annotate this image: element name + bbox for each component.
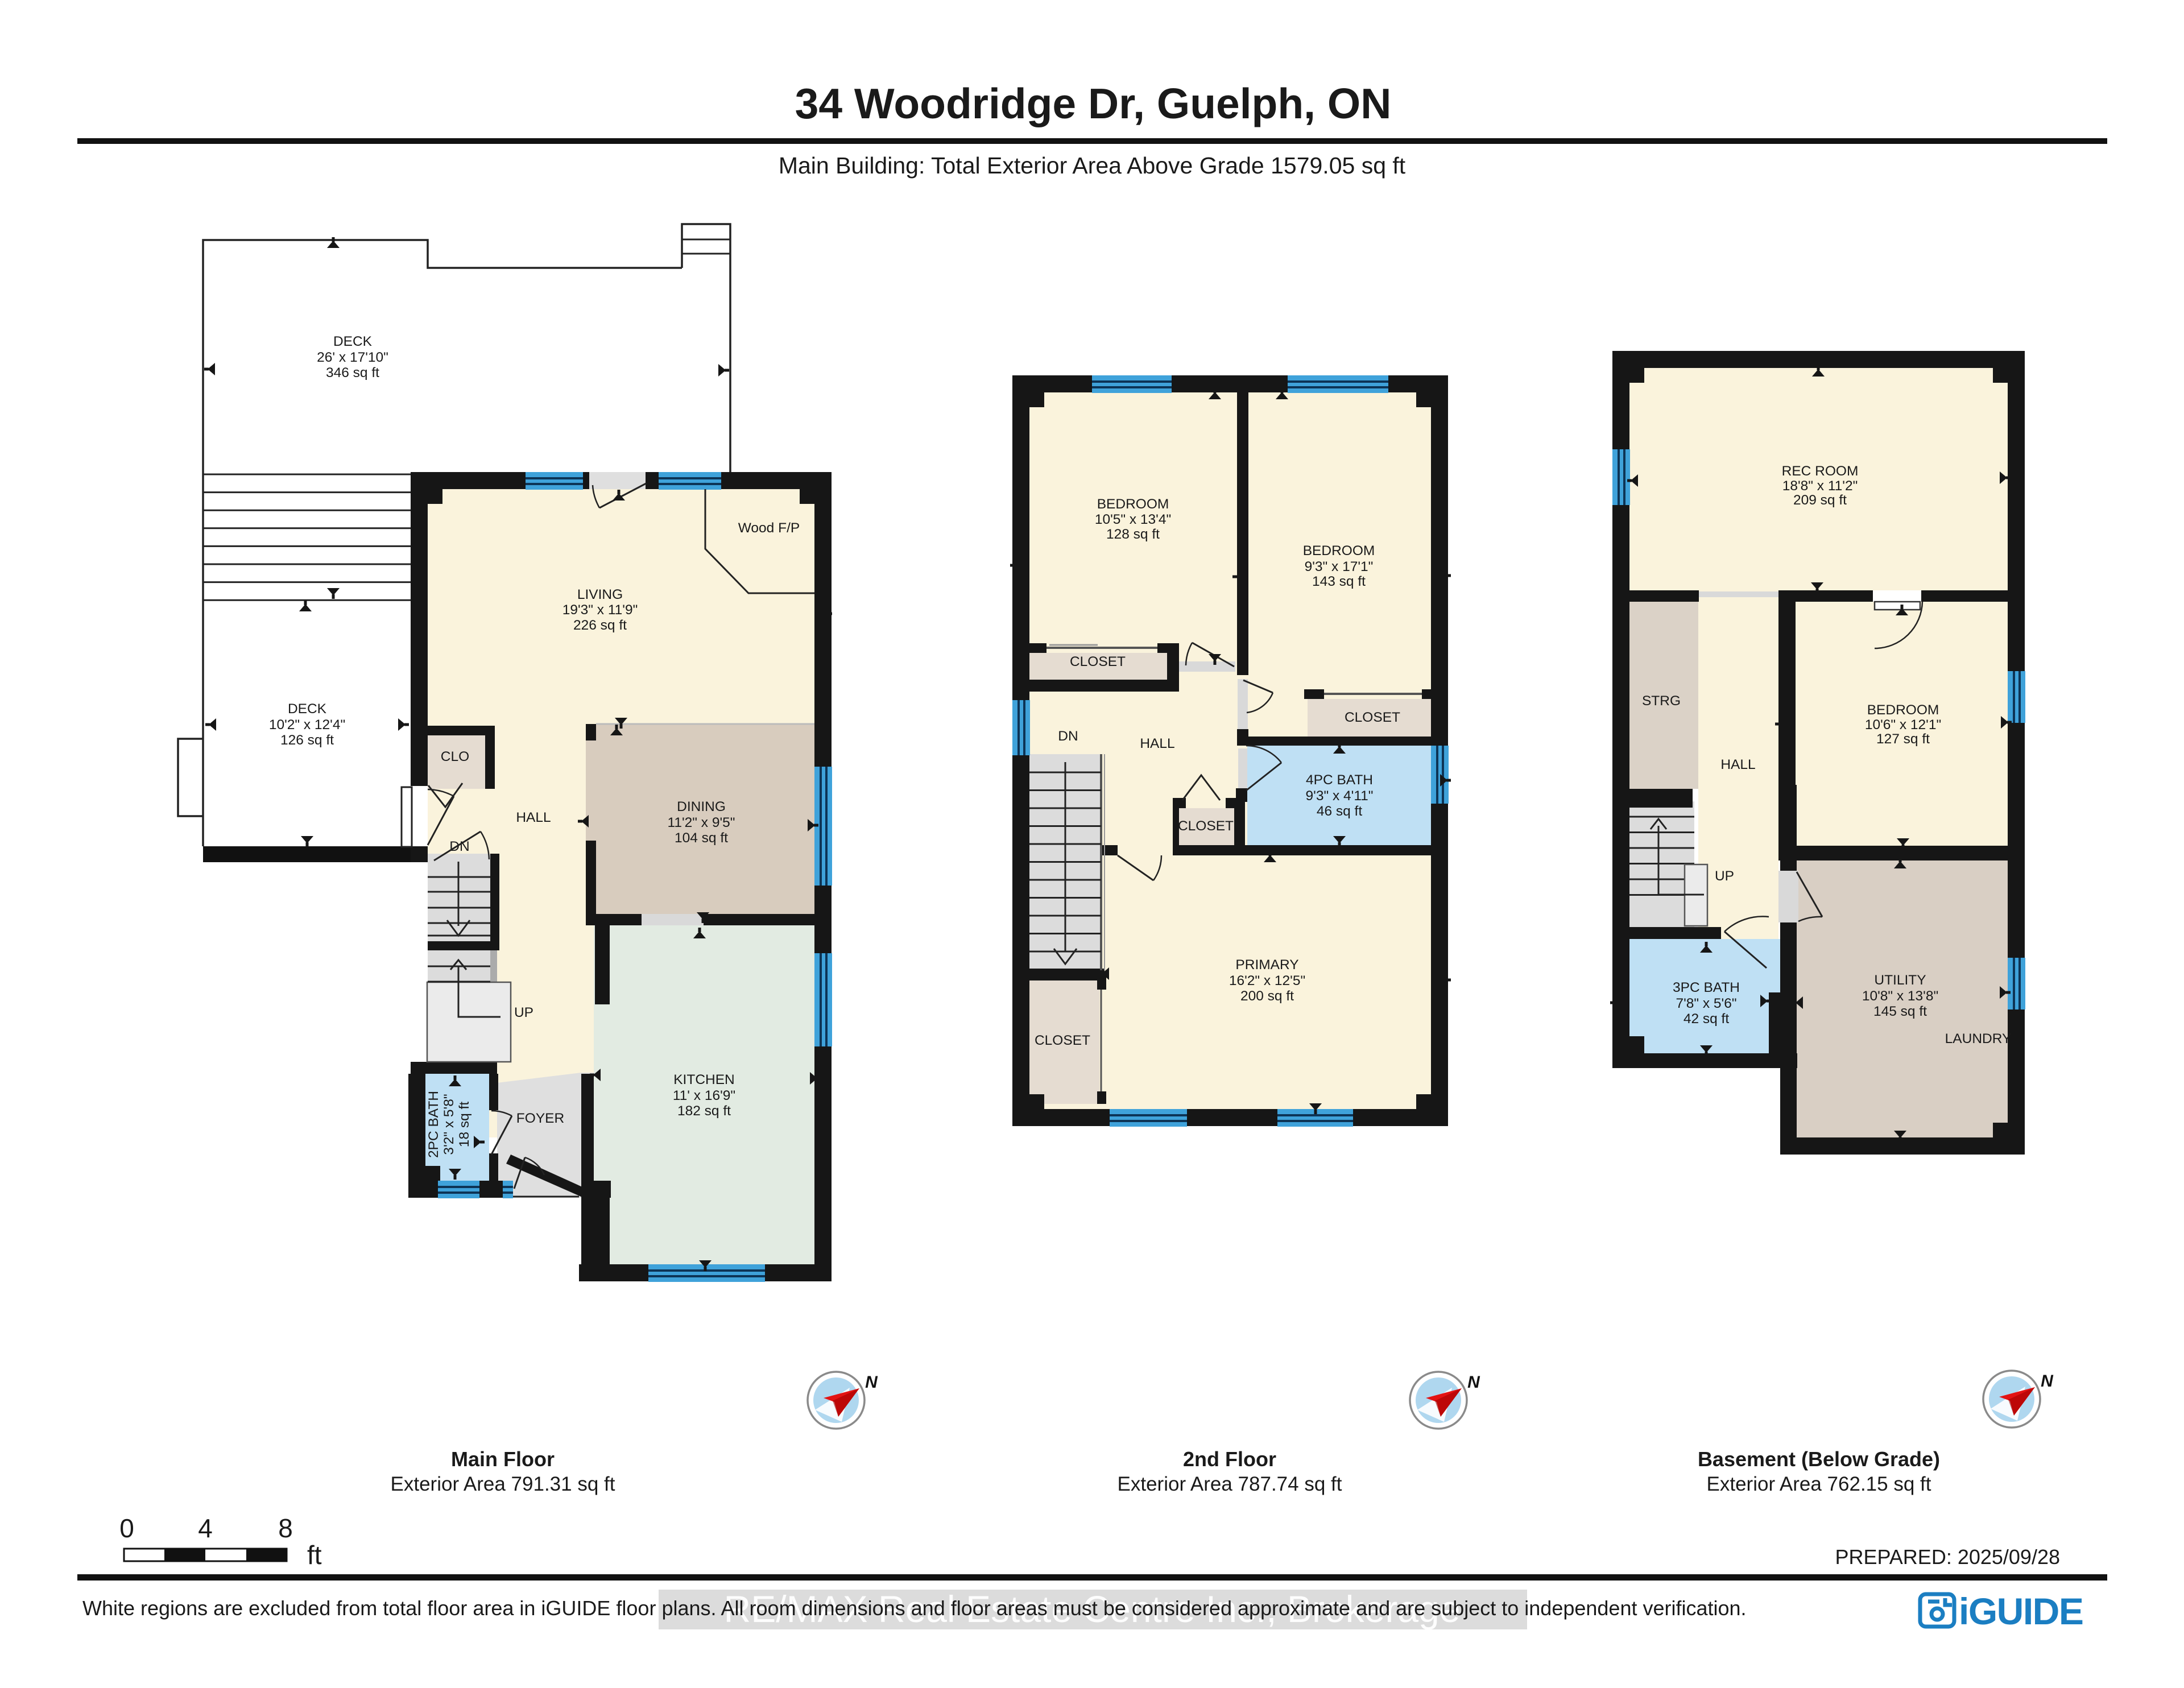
svg-text:KITCHEN: KITCHEN (673, 1072, 735, 1087)
svg-text:White regions are excluded fro: White regions are excluded from total fl… (82, 1596, 1747, 1620)
svg-text:16'2" x 12'5": 16'2" x 12'5" (1229, 973, 1305, 988)
svg-text:8: 8 (278, 1513, 293, 1543)
svg-text:19'3" x 11'9": 19'3" x 11'9" (562, 602, 638, 618)
svg-text:10'8" x 13'8": 10'8" x 13'8" (1862, 988, 1938, 1004)
svg-text:2nd Floor: 2nd Floor (1183, 1447, 1276, 1471)
svg-text:CLOSET: CLOSET (1035, 1033, 1090, 1048)
svg-text:2PC BATH: 2PC BATH (426, 1091, 441, 1158)
svg-text:BEDROOM: BEDROOM (1097, 497, 1169, 512)
svg-text:11' x 16'9": 11' x 16'9" (673, 1088, 735, 1103)
svg-text:26' x 17'10": 26' x 17'10" (317, 350, 388, 365)
svg-text:HALL: HALL (1720, 757, 1755, 772)
svg-text:N: N (1467, 1373, 1480, 1392)
svg-text:LAUNDRY: LAUNDRY (1945, 1031, 2012, 1046)
svg-text:UTILITY: UTILITY (1874, 973, 1926, 988)
svg-text:REC ROOM: REC ROOM (1782, 464, 1859, 479)
svg-text:PRIMARY: PRIMARY (1235, 957, 1298, 973)
svg-text:CLOSET: CLOSET (1345, 710, 1400, 725)
svg-text:4PC BATH: 4PC BATH (1306, 772, 1373, 788)
svg-text:N: N (865, 1373, 878, 1392)
svg-text:Main Building: Total Exterior: Main Building: Total Exterior Area Above… (779, 152, 1406, 179)
svg-text:Exterior Area 787.74 sq ft: Exterior Area 787.74 sq ft (1118, 1473, 1342, 1495)
svg-text:18 sq ft: 18 sq ft (457, 1102, 472, 1148)
svg-text:Wood F/P: Wood F/P (738, 520, 800, 536)
svg-text:Exterior Area 791.31 sq ft: Exterior Area 791.31 sq ft (391, 1473, 615, 1495)
svg-text:CLOSET: CLOSET (1070, 654, 1126, 669)
svg-text:CLO: CLO (441, 749, 469, 764)
svg-text:182 sq ft: 182 sq ft (677, 1103, 731, 1119)
svg-text:226 sq ft: 226 sq ft (573, 618, 627, 633)
svg-text:UP: UP (514, 1005, 533, 1020)
svg-text:UP: UP (1715, 868, 1734, 884)
svg-text:10'5" x 13'4": 10'5" x 13'4" (1095, 512, 1171, 527)
svg-text:10'6" x 12'1": 10'6" x 12'1" (1865, 717, 1941, 733)
svg-text:DECK: DECK (288, 701, 327, 717)
svg-text:3PC BATH: 3PC BATH (1673, 980, 1740, 995)
svg-text:HALL: HALL (516, 810, 551, 825)
svg-text:4: 4 (198, 1513, 213, 1543)
svg-text:128 sq ft: 128 sq ft (1106, 527, 1160, 542)
svg-text:DN: DN (1058, 729, 1078, 744)
svg-text:CLOSET: CLOSET (1178, 818, 1234, 834)
svg-text:34 Woodridge Dr, Guelph, ON: 34 Woodridge Dr, Guelph, ON (795, 80, 1392, 127)
svg-text:104 sq ft: 104 sq ft (675, 830, 728, 846)
svg-text:145 sq ft: 145 sq ft (1873, 1004, 1927, 1019)
svg-text:10'2" x 12'4": 10'2" x 12'4" (269, 717, 345, 733)
svg-text:Main Floor: Main Floor (451, 1447, 555, 1471)
svg-text:BEDROOM: BEDROOM (1867, 702, 1939, 718)
svg-text:200 sq ft: 200 sq ft (1240, 988, 1294, 1004)
svg-text:PREPARED: 2025/09/28: PREPARED: 2025/09/28 (1835, 1545, 2060, 1569)
svg-text:iGUIDE: iGUIDE (1959, 1590, 2083, 1632)
svg-text:9'3" x 4'11": 9'3" x 4'11" (1306, 788, 1374, 804)
svg-text:18'8" x 11'2": 18'8" x 11'2" (1782, 478, 1858, 494)
svg-text:N: N (2041, 1372, 2054, 1391)
svg-text:0: 0 (119, 1513, 134, 1543)
svg-text:STRG: STRG (1642, 693, 1681, 709)
svg-text:46 sq ft: 46 sq ft (1317, 804, 1363, 819)
svg-text:Exterior Area 762.15 sq ft: Exterior Area 762.15 sq ft (1707, 1473, 1931, 1495)
svg-text:Basement (Below Grade): Basement (Below Grade) (1698, 1447, 1940, 1471)
svg-text:ft: ft (307, 1540, 322, 1570)
svg-text:143 sq ft: 143 sq ft (1312, 574, 1366, 589)
svg-text:HALL: HALL (1140, 736, 1174, 751)
svg-text:42 sq ft: 42 sq ft (1683, 1011, 1730, 1027)
svg-text:11'2" x 9'5": 11'2" x 9'5" (668, 815, 735, 830)
svg-text:DECK: DECK (333, 334, 373, 349)
svg-text:209 sq ft: 209 sq ft (1793, 493, 1847, 508)
svg-text:7'8" x 5'6": 7'8" x 5'6" (1676, 996, 1736, 1011)
svg-text:9'3" x 17'1": 9'3" x 17'1" (1305, 559, 1374, 574)
svg-text:346 sq ft: 346 sq ft (326, 365, 379, 380)
svg-text:126 sq ft: 126 sq ft (280, 733, 334, 748)
svg-text:FOYER: FOYER (516, 1111, 564, 1126)
svg-text:LIVING: LIVING (577, 587, 623, 602)
svg-text:127 sq ft: 127 sq ft (1876, 731, 1930, 747)
svg-text:BEDROOM: BEDROOM (1303, 543, 1375, 558)
svg-text:3'2" x 5'8": 3'2" x 5'8" (441, 1094, 457, 1155)
svg-text:DINING: DINING (677, 799, 726, 814)
